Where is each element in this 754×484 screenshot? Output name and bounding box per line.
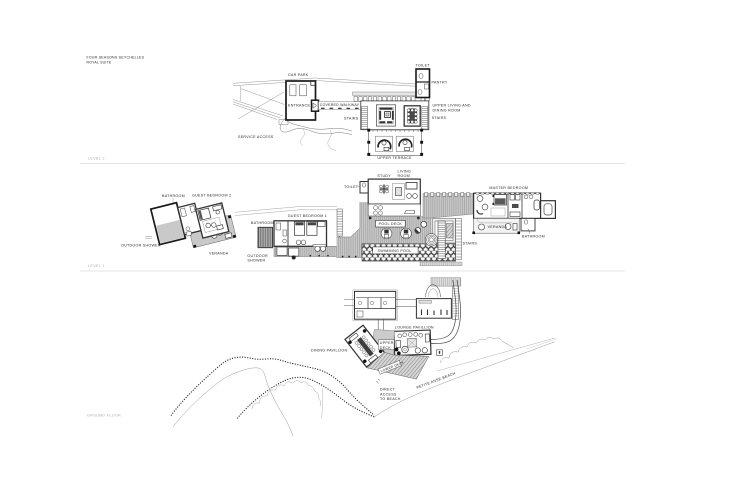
svg-text:SWIMMING POOL: SWIMMING POOL bbox=[378, 249, 412, 253]
svg-text:LEVEL 1: LEVEL 1 bbox=[88, 264, 105, 268]
svg-text:PANTRY: PANTRY bbox=[432, 80, 448, 84]
svg-text:DECK: DECK bbox=[380, 346, 391, 350]
svg-text:STAIRS: STAIRS bbox=[463, 242, 478, 246]
svg-text:FOUR SEASONS SEYCHELLES: FOUR SEASONS SEYCHELLES bbox=[87, 56, 145, 60]
svg-text:STAIRS: STAIRS bbox=[432, 116, 447, 120]
svg-text:LEVEL 2: LEVEL 2 bbox=[88, 157, 105, 161]
svg-text:LIVING: LIVING bbox=[398, 170, 412, 174]
svg-text:VERANDA: VERANDA bbox=[209, 252, 229, 256]
svg-text:ACCESS: ACCESS bbox=[380, 392, 397, 396]
svg-text:SERVICE ACCESS: SERVICE ACCESS bbox=[238, 135, 274, 139]
svg-text:ROOM: ROOM bbox=[398, 174, 410, 178]
svg-text:ROYAL SUITE: ROYAL SUITE bbox=[87, 61, 112, 65]
svg-text:TOILET: TOILET bbox=[344, 185, 359, 189]
svg-text:VERANDA: VERANDA bbox=[488, 225, 508, 229]
svg-text:POOL DECK: POOL DECK bbox=[379, 222, 403, 226]
svg-text:OUTDOOR SHOWER: OUTDOOR SHOWER bbox=[121, 243, 161, 247]
svg-text:ENTRANCE: ENTRANCE bbox=[288, 103, 310, 107]
svg-text:DINING ROOM: DINING ROOM bbox=[433, 108, 461, 112]
svg-text:BATHROOM: BATHROOM bbox=[522, 235, 545, 239]
svg-text:CAR PARK: CAR PARK bbox=[288, 73, 309, 77]
svg-text:LOUNGE PAVILLION: LOUNGE PAVILLION bbox=[395, 325, 434, 329]
svg-text:UPPER LIVING AND: UPPER LIVING AND bbox=[433, 104, 471, 108]
svg-text:STUDY: STUDY bbox=[377, 174, 391, 178]
svg-text:SHOWER: SHOWER bbox=[247, 259, 265, 263]
svg-text:STAIRS: STAIRS bbox=[344, 116, 359, 120]
svg-text:GROUND FLOOR: GROUND FLOOR bbox=[87, 414, 121, 418]
svg-text:OUTDOOR: OUTDOOR bbox=[247, 254, 268, 258]
svg-text:BATHROOM: BATHROOM bbox=[251, 221, 274, 225]
svg-text:MASTER BEDROOM: MASTER BEDROOM bbox=[489, 186, 528, 190]
svg-text:TOILET: TOILET bbox=[416, 63, 431, 67]
svg-text:TO BEACH: TO BEACH bbox=[380, 397, 401, 401]
svg-text:GUEST BEDROOM 1: GUEST BEDROOM 1 bbox=[288, 214, 327, 218]
svg-text:UPPER TERRACE: UPPER TERRACE bbox=[377, 156, 412, 160]
svg-text:DIRECT: DIRECT bbox=[380, 388, 396, 392]
svg-text:COVERED WALKWAY: COVERED WALKWAY bbox=[320, 103, 360, 107]
svg-text:DINING PAVILLION: DINING PAVILLION bbox=[311, 348, 347, 352]
svg-text:BATHROOM: BATHROOM bbox=[162, 194, 185, 198]
svg-text:GUEST BEDROOM 2: GUEST BEDROOM 2 bbox=[192, 193, 231, 197]
svg-text:UPPER: UPPER bbox=[380, 341, 394, 345]
